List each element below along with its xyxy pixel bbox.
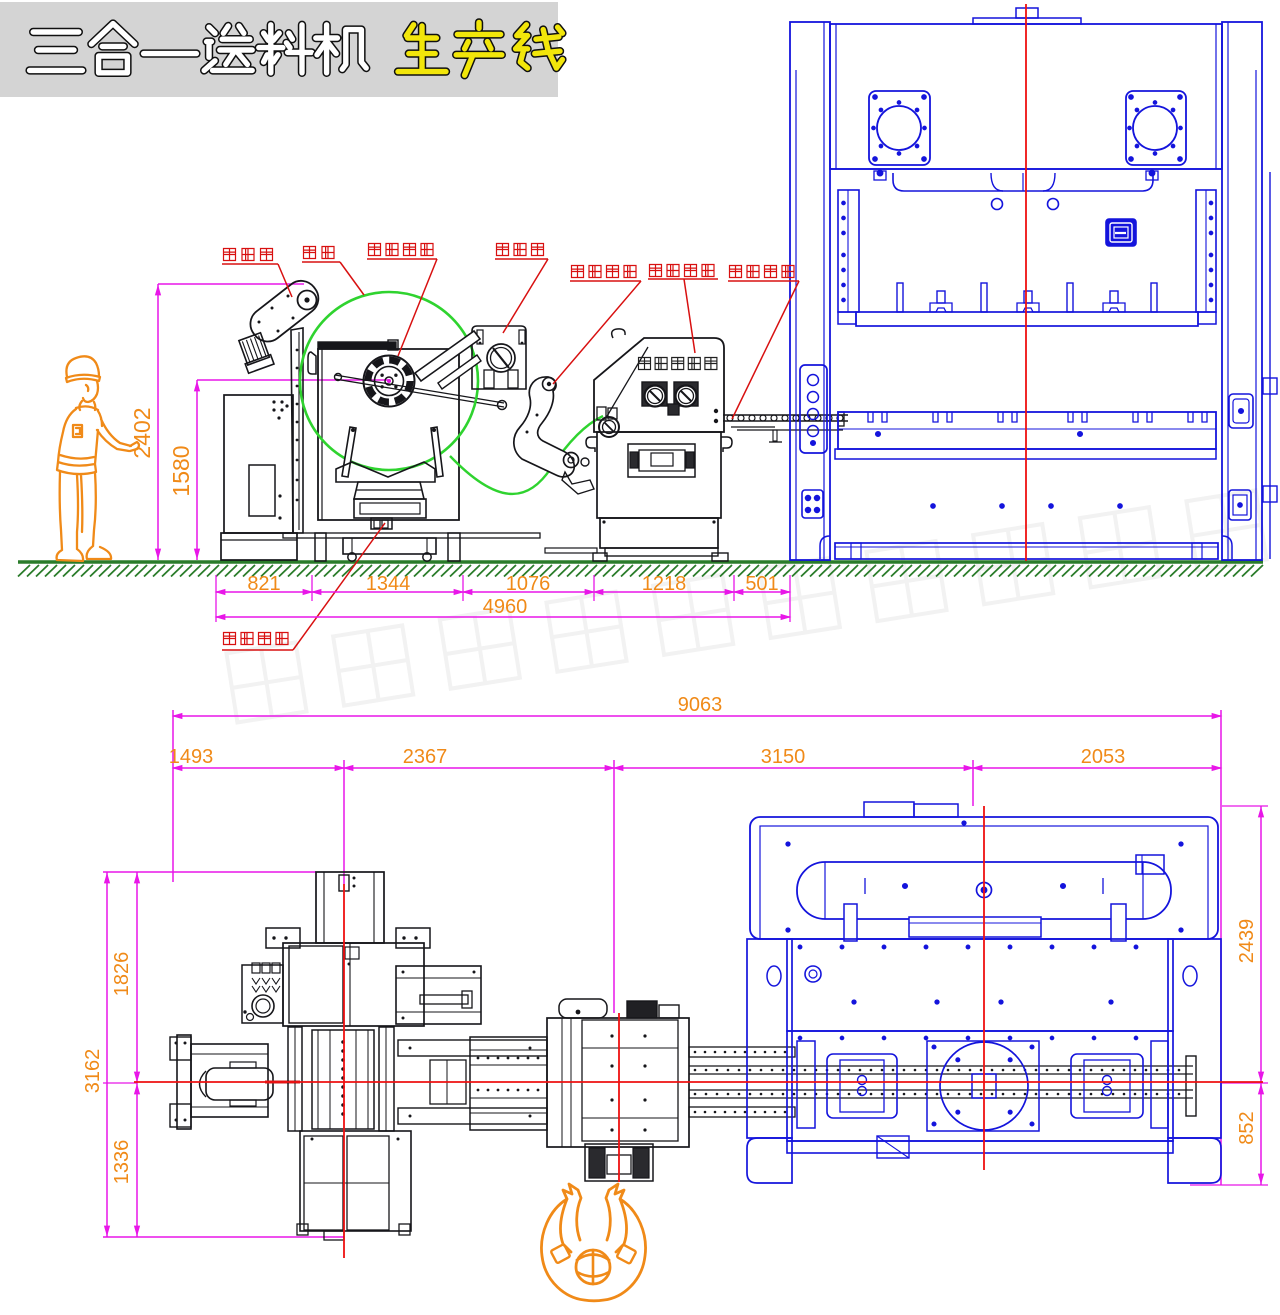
svg-text:1336: 1336 xyxy=(111,1140,133,1185)
svg-text:3150: 3150 xyxy=(761,746,806,768)
svg-text:1344: 1344 xyxy=(366,573,411,595)
svg-text:3162: 3162 xyxy=(82,1049,104,1094)
svg-text:1493: 1493 xyxy=(169,746,214,768)
svg-text:2402: 2402 xyxy=(129,407,155,458)
svg-text:1826: 1826 xyxy=(111,952,133,997)
svg-text:1076: 1076 xyxy=(506,573,551,595)
svg-text:2439: 2439 xyxy=(1236,919,1258,964)
svg-text:2053: 2053 xyxy=(1081,746,1126,768)
svg-text:1218: 1218 xyxy=(642,573,687,595)
svg-text:852: 852 xyxy=(1236,1111,1258,1144)
svg-text:9063: 9063 xyxy=(678,694,723,716)
svg-text:501: 501 xyxy=(745,573,778,595)
svg-text:4960: 4960 xyxy=(483,596,528,618)
svg-text:2367: 2367 xyxy=(403,746,448,768)
svg-text:821: 821 xyxy=(247,573,280,595)
svg-text:1580: 1580 xyxy=(168,445,194,496)
